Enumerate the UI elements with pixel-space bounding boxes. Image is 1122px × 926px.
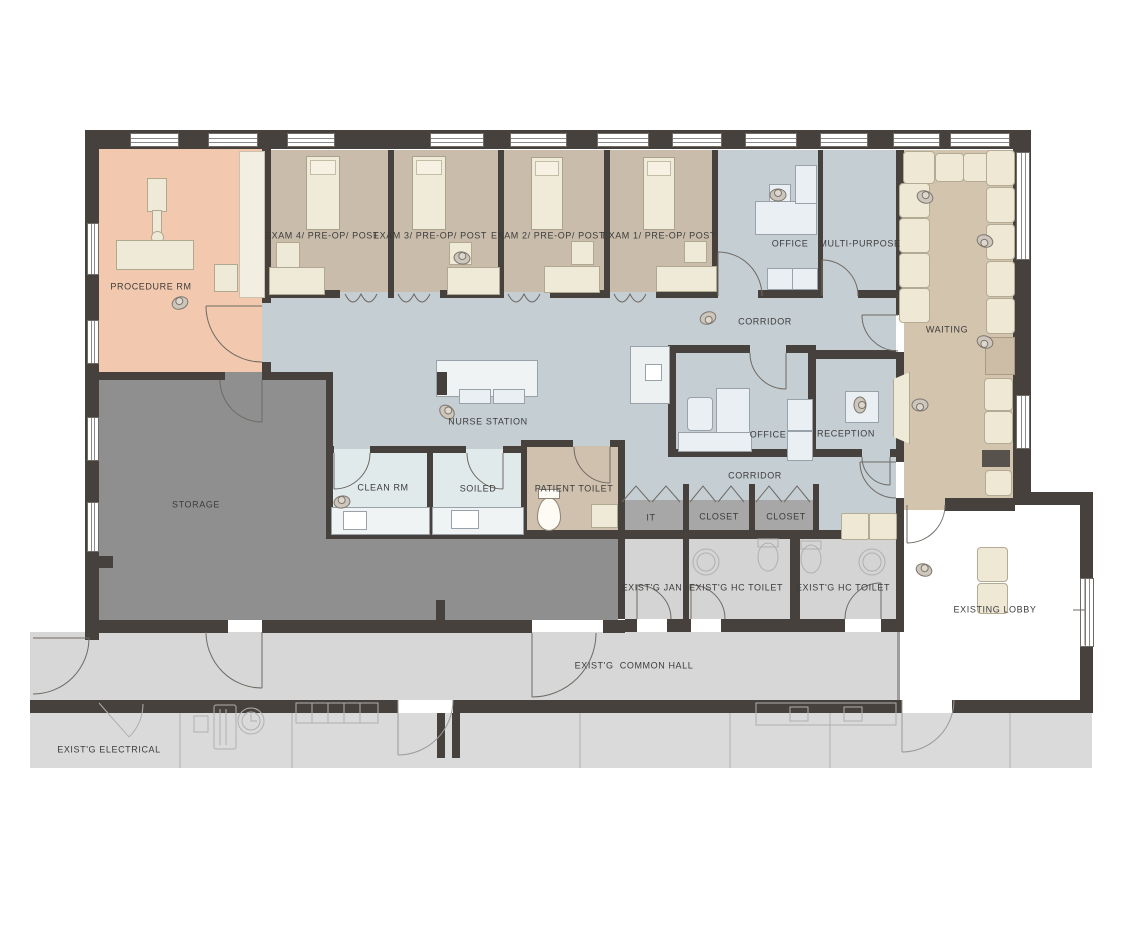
existing-toilet	[758, 539, 778, 571]
existing-clock	[238, 708, 264, 734]
room-label-clean-rm: CLEAN RM	[357, 484, 408, 493]
room-label-storage: STORAGE	[172, 501, 220, 510]
person-icon	[453, 251, 471, 266]
person-icon	[975, 233, 994, 250]
room-label-patient-toilet: PATIENT TOILET	[535, 485, 614, 494]
door-office-mid	[750, 353, 786, 389]
door-procedure	[206, 306, 262, 362]
room-label-existing-hc-toilet-2: EXIST'G HC TOILET	[796, 584, 890, 593]
person-icon	[915, 189, 934, 206]
existing-radiator	[214, 705, 236, 749]
existing-door	[902, 700, 954, 752]
bifold-door-closet-2	[756, 486, 810, 502]
person-icon	[698, 310, 717, 327]
curtain-exam4	[345, 294, 377, 302]
room-label-corridor-upper: CORRIDOR	[738, 318, 792, 327]
room-label-soiled: SOILED	[460, 485, 497, 494]
curtain-exam1	[614, 294, 646, 302]
person-icon	[770, 189, 786, 201]
door-waiting-lobby	[907, 505, 945, 543]
room-label-closet-2: CLOSET	[766, 513, 806, 522]
room-label-common-hall: EXIST'G COMMON HALL	[575, 662, 694, 671]
door-patient-toilet	[574, 447, 610, 483]
door-reception	[862, 457, 890, 485]
curtain-exam3	[398, 294, 430, 302]
room-label-existing-jan: EXIST'G JAN	[622, 584, 683, 593]
door-multipurpose	[822, 260, 858, 296]
person-icon	[170, 295, 189, 312]
room-label-nurse-station: NURSE STATION	[448, 418, 527, 427]
room-label-waiting: WAITING	[926, 326, 968, 335]
room-label-it: IT	[646, 514, 655, 523]
person-icon	[854, 397, 866, 413]
room-label-office-mid: OFFICE	[750, 431, 787, 440]
door-storage-top	[220, 380, 262, 422]
bifold-door-it	[622, 486, 680, 502]
room-label-exam4: EXAM 4/ PRE-OP/ POST	[265, 232, 379, 241]
existing-partition	[180, 713, 1010, 768]
existing-door	[99, 703, 143, 737]
person-icon	[333, 495, 351, 510]
room-label-closet-1: CLOSET	[699, 513, 739, 522]
door-corridor-waiting-lower	[860, 462, 896, 498]
room-label-exam3: EXAM 3/ PRE-OP/ POST	[373, 232, 487, 241]
room-label-existing-hc-toilet-1: EXIST'G HC TOILET	[689, 584, 783, 593]
existing-door	[398, 700, 453, 755]
room-label-corridor-lower: CORRIDOR	[728, 472, 782, 481]
room-label-exam2: EXAM 2/ PRE-OP/ POST	[491, 232, 605, 241]
room-label-multipurpose: MULTI-PURPOSE	[819, 240, 900, 249]
existing-counter	[756, 703, 896, 725]
person-icon	[914, 562, 933, 579]
room-label-procedure-rm: PROCEDURE RM	[110, 283, 191, 292]
curtain-exam2	[508, 294, 540, 302]
door-office-top	[718, 252, 762, 296]
floor-plan: PROCEDURE RM EXAM 4/ PRE-OP/ POST EXAM 3…	[0, 0, 1122, 926]
door-hall-west	[33, 638, 89, 694]
existing-clock	[859, 549, 885, 575]
room-label-exam1: EXAM 1/ PRE-OP/ POST	[602, 232, 716, 241]
existing-lockers	[296, 703, 378, 723]
door-corridor-waiting-upper	[862, 315, 898, 351]
existing-clock	[693, 549, 719, 575]
door-lobby-entry	[1073, 578, 1085, 645]
room-label-electrical: EXIST'G ELECTRICAL	[57, 746, 161, 755]
person-icon	[912, 399, 928, 411]
room-label-existing-lobby: EXISTING LOBBY	[954, 606, 1037, 615]
door-storage-hall-left	[206, 632, 262, 688]
room-label-office-top: OFFICE	[772, 240, 809, 249]
existing-lavatory	[194, 716, 208, 732]
person-icon	[975, 334, 994, 351]
room-label-reception: RECEPTION	[817, 430, 875, 439]
bifold-door-closet-1	[690, 486, 744, 502]
existing-toilet	[801, 541, 821, 573]
